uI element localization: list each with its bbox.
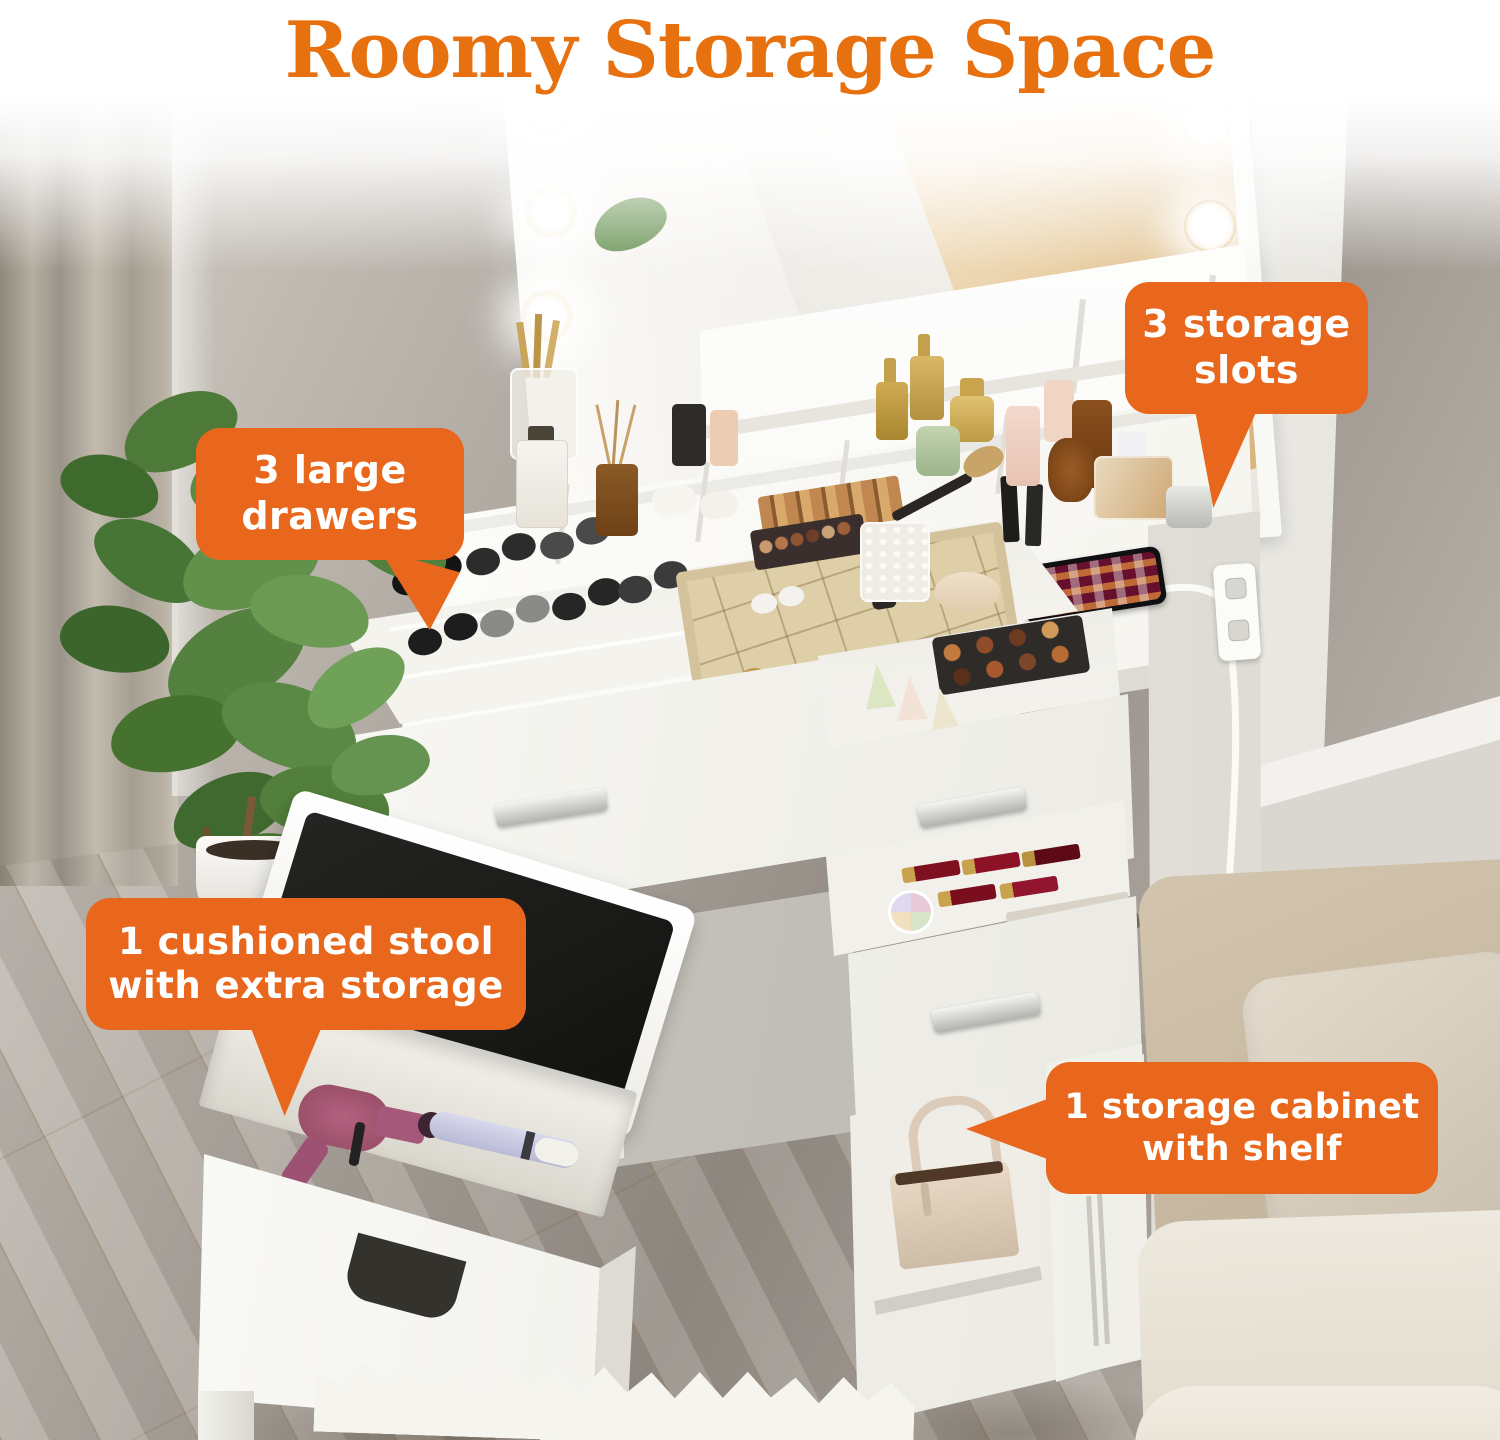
stool-leg [198,1391,254,1440]
callout-text: 1 storage cabinet [1064,1086,1419,1128]
foundation-bottle [710,410,738,466]
perfume-green [916,426,960,476]
soap-dispenser-gold [910,356,944,420]
callout-text: slots [1194,348,1299,394]
handbag-tassel [920,1182,932,1217]
callout-text: 3 large [253,448,407,494]
outlet-socket [1228,619,1250,641]
handbag [884,1124,1019,1270]
callout-cabinet: 1 storage cabinet with shelf [1046,1062,1438,1194]
lotion-pink [1006,406,1040,486]
callout-text: 1 cushioned stool [118,920,494,964]
product-feature-image: Roomy Storage Space [0,0,1500,1440]
foundation-bottle [672,404,706,466]
amber-bottle [1048,438,1094,502]
callout-text: 3 storage [1142,302,1350,348]
mirror-bulb [521,290,573,342]
diffuser-bottle [596,464,638,536]
soap-dispenser-gold [876,382,908,440]
armchair-armrest [1135,1386,1500,1440]
lotion-pink [1044,380,1074,442]
power-outlet [1213,563,1262,662]
handbag-body [889,1160,1020,1270]
callout-storage-slots: 3 storage slots [1125,282,1368,414]
powder-compact [934,572,1000,612]
photo-top-fade [0,96,1500,271]
callout-text: drawers [241,494,418,540]
straightener-band [520,1131,535,1160]
callout-text: with shelf [1142,1128,1342,1170]
perfume-crystal [1094,456,1174,520]
pearl-jar [860,522,930,602]
white-sunglasses [750,592,779,616]
page-title: Roomy Storage Space [0,0,1500,100]
callout-stool: 1 cushioned stool with extra storage [86,898,526,1030]
perfume-bottle [516,440,568,528]
callout-text: with extra storage [108,964,503,1008]
callout-large-drawers: 3 large drawers [196,428,464,560]
silver-jar [1166,486,1212,528]
outlet-socket [1225,577,1247,599]
cream-jar [888,890,934,934]
mascara-tube [1025,484,1043,547]
